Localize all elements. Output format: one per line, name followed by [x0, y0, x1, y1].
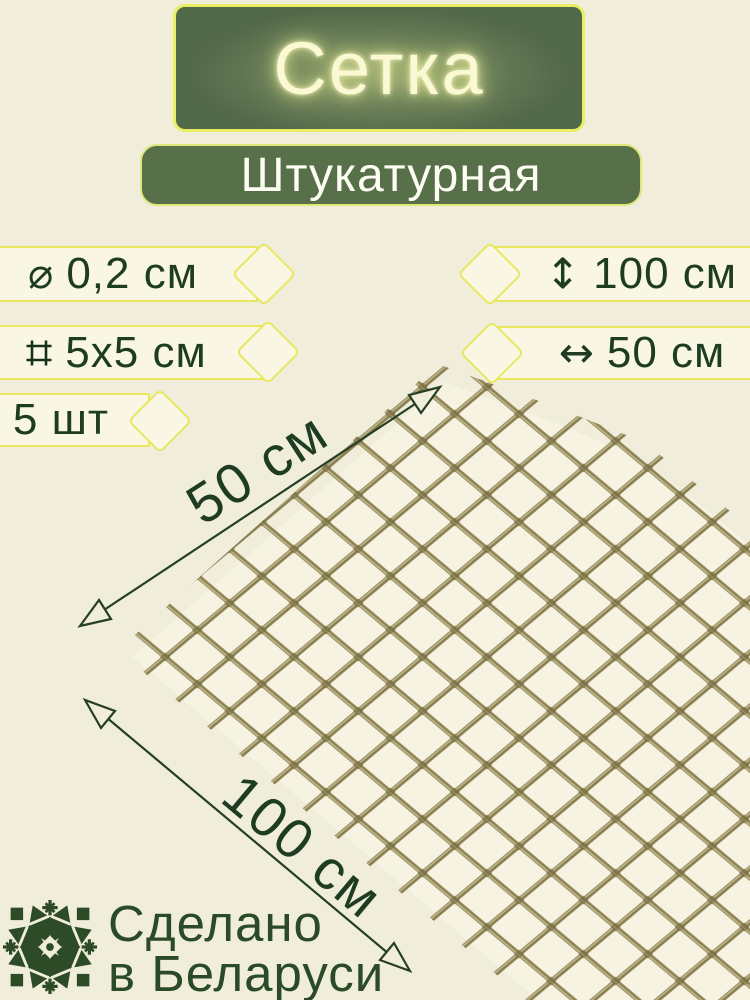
- subtitle-banner: Штукатурная: [140, 144, 642, 206]
- badge-length-label: 100 см: [593, 249, 737, 299]
- badge-cell-size-label: 5x5 см: [65, 328, 206, 378]
- product-title: Сетка: [273, 26, 484, 111]
- diameter-icon: ⌀: [28, 253, 54, 295]
- title-banner: Сетка: [173, 4, 585, 132]
- product-subtitle: Штукатурная: [240, 148, 541, 203]
- made-in-line1: Сделано: [108, 899, 384, 949]
- badge-wire-diameter-label: 0,2 см: [66, 249, 198, 299]
- length-arrowhead-bottom: [380, 943, 410, 971]
- length-arrowhead-top: [85, 700, 115, 728]
- width-arrowhead-bottom: [80, 600, 111, 626]
- badge-length: ↕ 100 см: [490, 246, 750, 302]
- vertical-arrows-icon: ↕: [545, 253, 581, 295]
- badge-quantity: 5 шт: [0, 393, 150, 447]
- badge-wire-diameter: ⌀ 0,2 см: [0, 246, 258, 302]
- product-card: Сетка Штукатурная ⌀ 0,2 см 5x5 см 5 шт ↕…: [0, 0, 750, 1000]
- made-in-text: Сделано в Беларуси: [108, 899, 384, 999]
- badge-quantity-label: 5 шт: [13, 395, 109, 445]
- made-in-line2: в Беларуси: [108, 949, 384, 999]
- badge-cell-size: 5x5 см: [0, 325, 264, 380]
- width-arrowhead-top: [409, 387, 440, 413]
- horizontal-arrows-icon: ↔: [559, 332, 595, 374]
- badge-width-label: 50 см: [607, 328, 725, 378]
- badge-width: ↔ 50 см: [492, 326, 750, 380]
- cell-size-icon: [25, 339, 53, 367]
- belarus-ornament-icon: [2, 895, 98, 999]
